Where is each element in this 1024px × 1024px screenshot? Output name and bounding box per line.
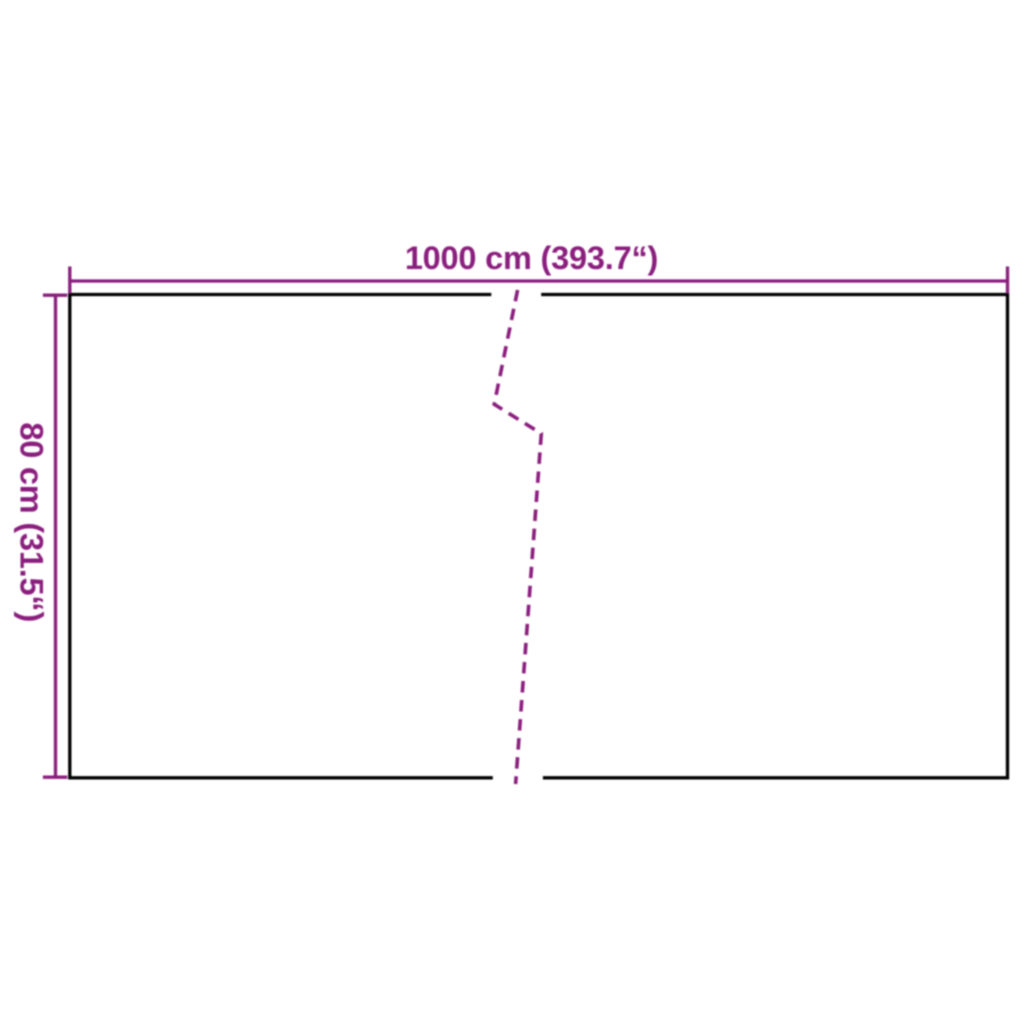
svg-text:80 cm (31.5“): 80 cm (31.5“): [14, 422, 50, 622]
svg-text:1000 cm (393.7“): 1000 cm (393.7“): [405, 240, 658, 276]
